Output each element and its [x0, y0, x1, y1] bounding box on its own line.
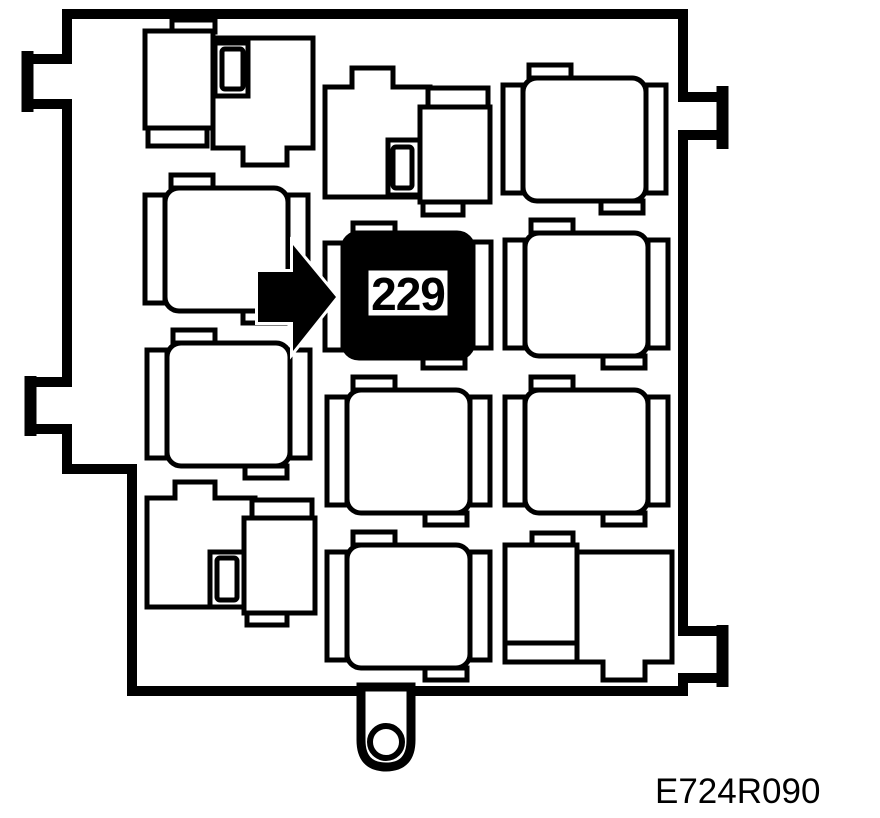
connector-slot-inner — [393, 147, 412, 188]
bottom-mounting-lug — [361, 687, 411, 767]
relay-top-right — [503, 65, 666, 213]
shell-left-edge — [23, 104, 67, 382]
relay-row3-middle — [327, 377, 490, 525]
connector-bottom-left — [147, 482, 315, 625]
lug-hole — [370, 726, 402, 758]
connector-top-middle — [325, 68, 490, 215]
relay-row4-middle — [327, 532, 490, 680]
relay-row2-right — [505, 220, 668, 368]
connector-slot-inner — [222, 49, 243, 89]
relay-row3-right — [505, 377, 668, 525]
connector-slot-inner — [217, 558, 237, 600]
shell-right-edge — [683, 135, 727, 631]
fuse-box-diagram: 229 E724R090 — [0, 0, 880, 818]
figure-reference-code: E724R090 — [655, 772, 820, 811]
relay-number-label: 229 — [371, 268, 445, 320]
highlighted-relay-229: 229 — [325, 223, 491, 368]
connector-top-left — [145, 20, 313, 165]
connector-bottom-right — [505, 533, 672, 680]
relay-row3-left — [147, 330, 310, 478]
